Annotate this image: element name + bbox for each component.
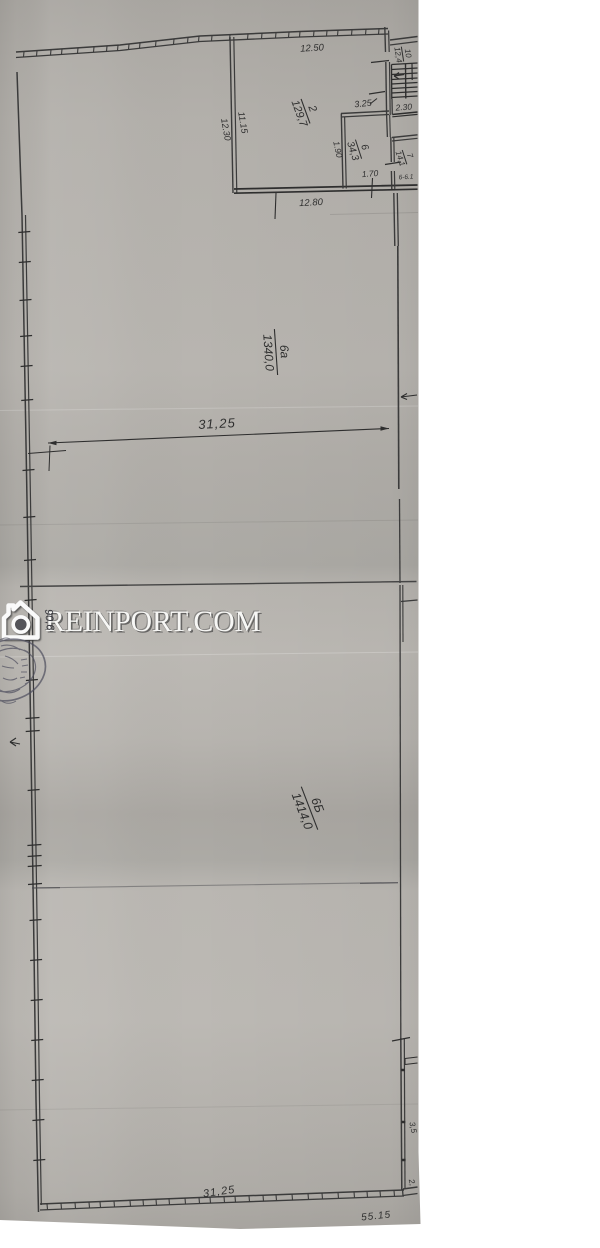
svg-text:3.25: 3.25	[354, 98, 373, 110]
svg-text:1.70: 1.70	[361, 168, 378, 179]
svg-text:6-6.1: 6-6.1	[398, 174, 414, 182]
svg-text:12.80: 12.80	[299, 197, 324, 209]
svg-text:90,6: 90,6	[42, 609, 56, 632]
svg-text:12.50: 12.50	[300, 42, 325, 54]
svg-text:31,25: 31,25	[198, 415, 236, 432]
svg-text:2.30: 2.30	[394, 101, 412, 112]
svg-text:REINPORT.COM: REINPORT.COM	[45, 605, 261, 638]
svg-text:1340,0: 1340,0	[260, 334, 277, 372]
svg-text:6а: 6а	[277, 344, 292, 359]
